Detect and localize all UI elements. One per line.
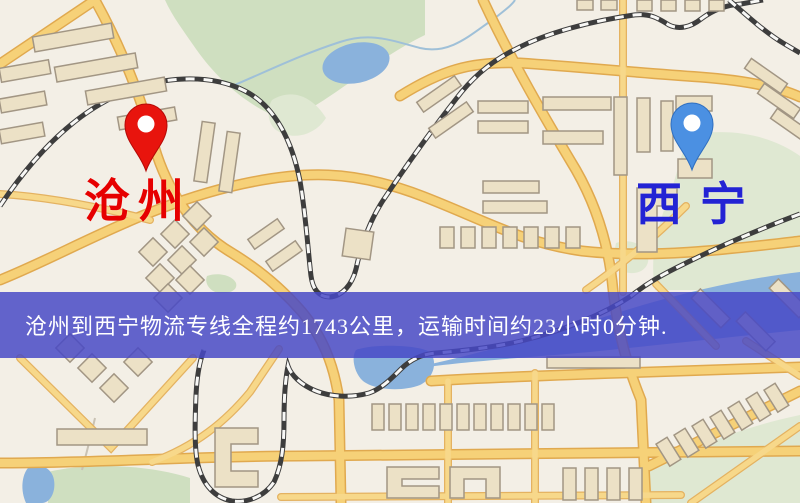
- map-canvas[interactable]: [0, 0, 800, 503]
- route-info-banner: 沧州到西宁物流专线全程约1743公里，运输时间约23小时0分钟.: [0, 292, 800, 358]
- bottom-left-water: [22, 466, 54, 503]
- map-view: 沧州 西宁 沧州到西宁物流专线全程约1743公里，运输时间约23小时0分钟.: [0, 0, 800, 503]
- route-info-text: 沧州到西宁物流专线全程约1743公里，运输时间约23小时0分钟.: [0, 309, 668, 341]
